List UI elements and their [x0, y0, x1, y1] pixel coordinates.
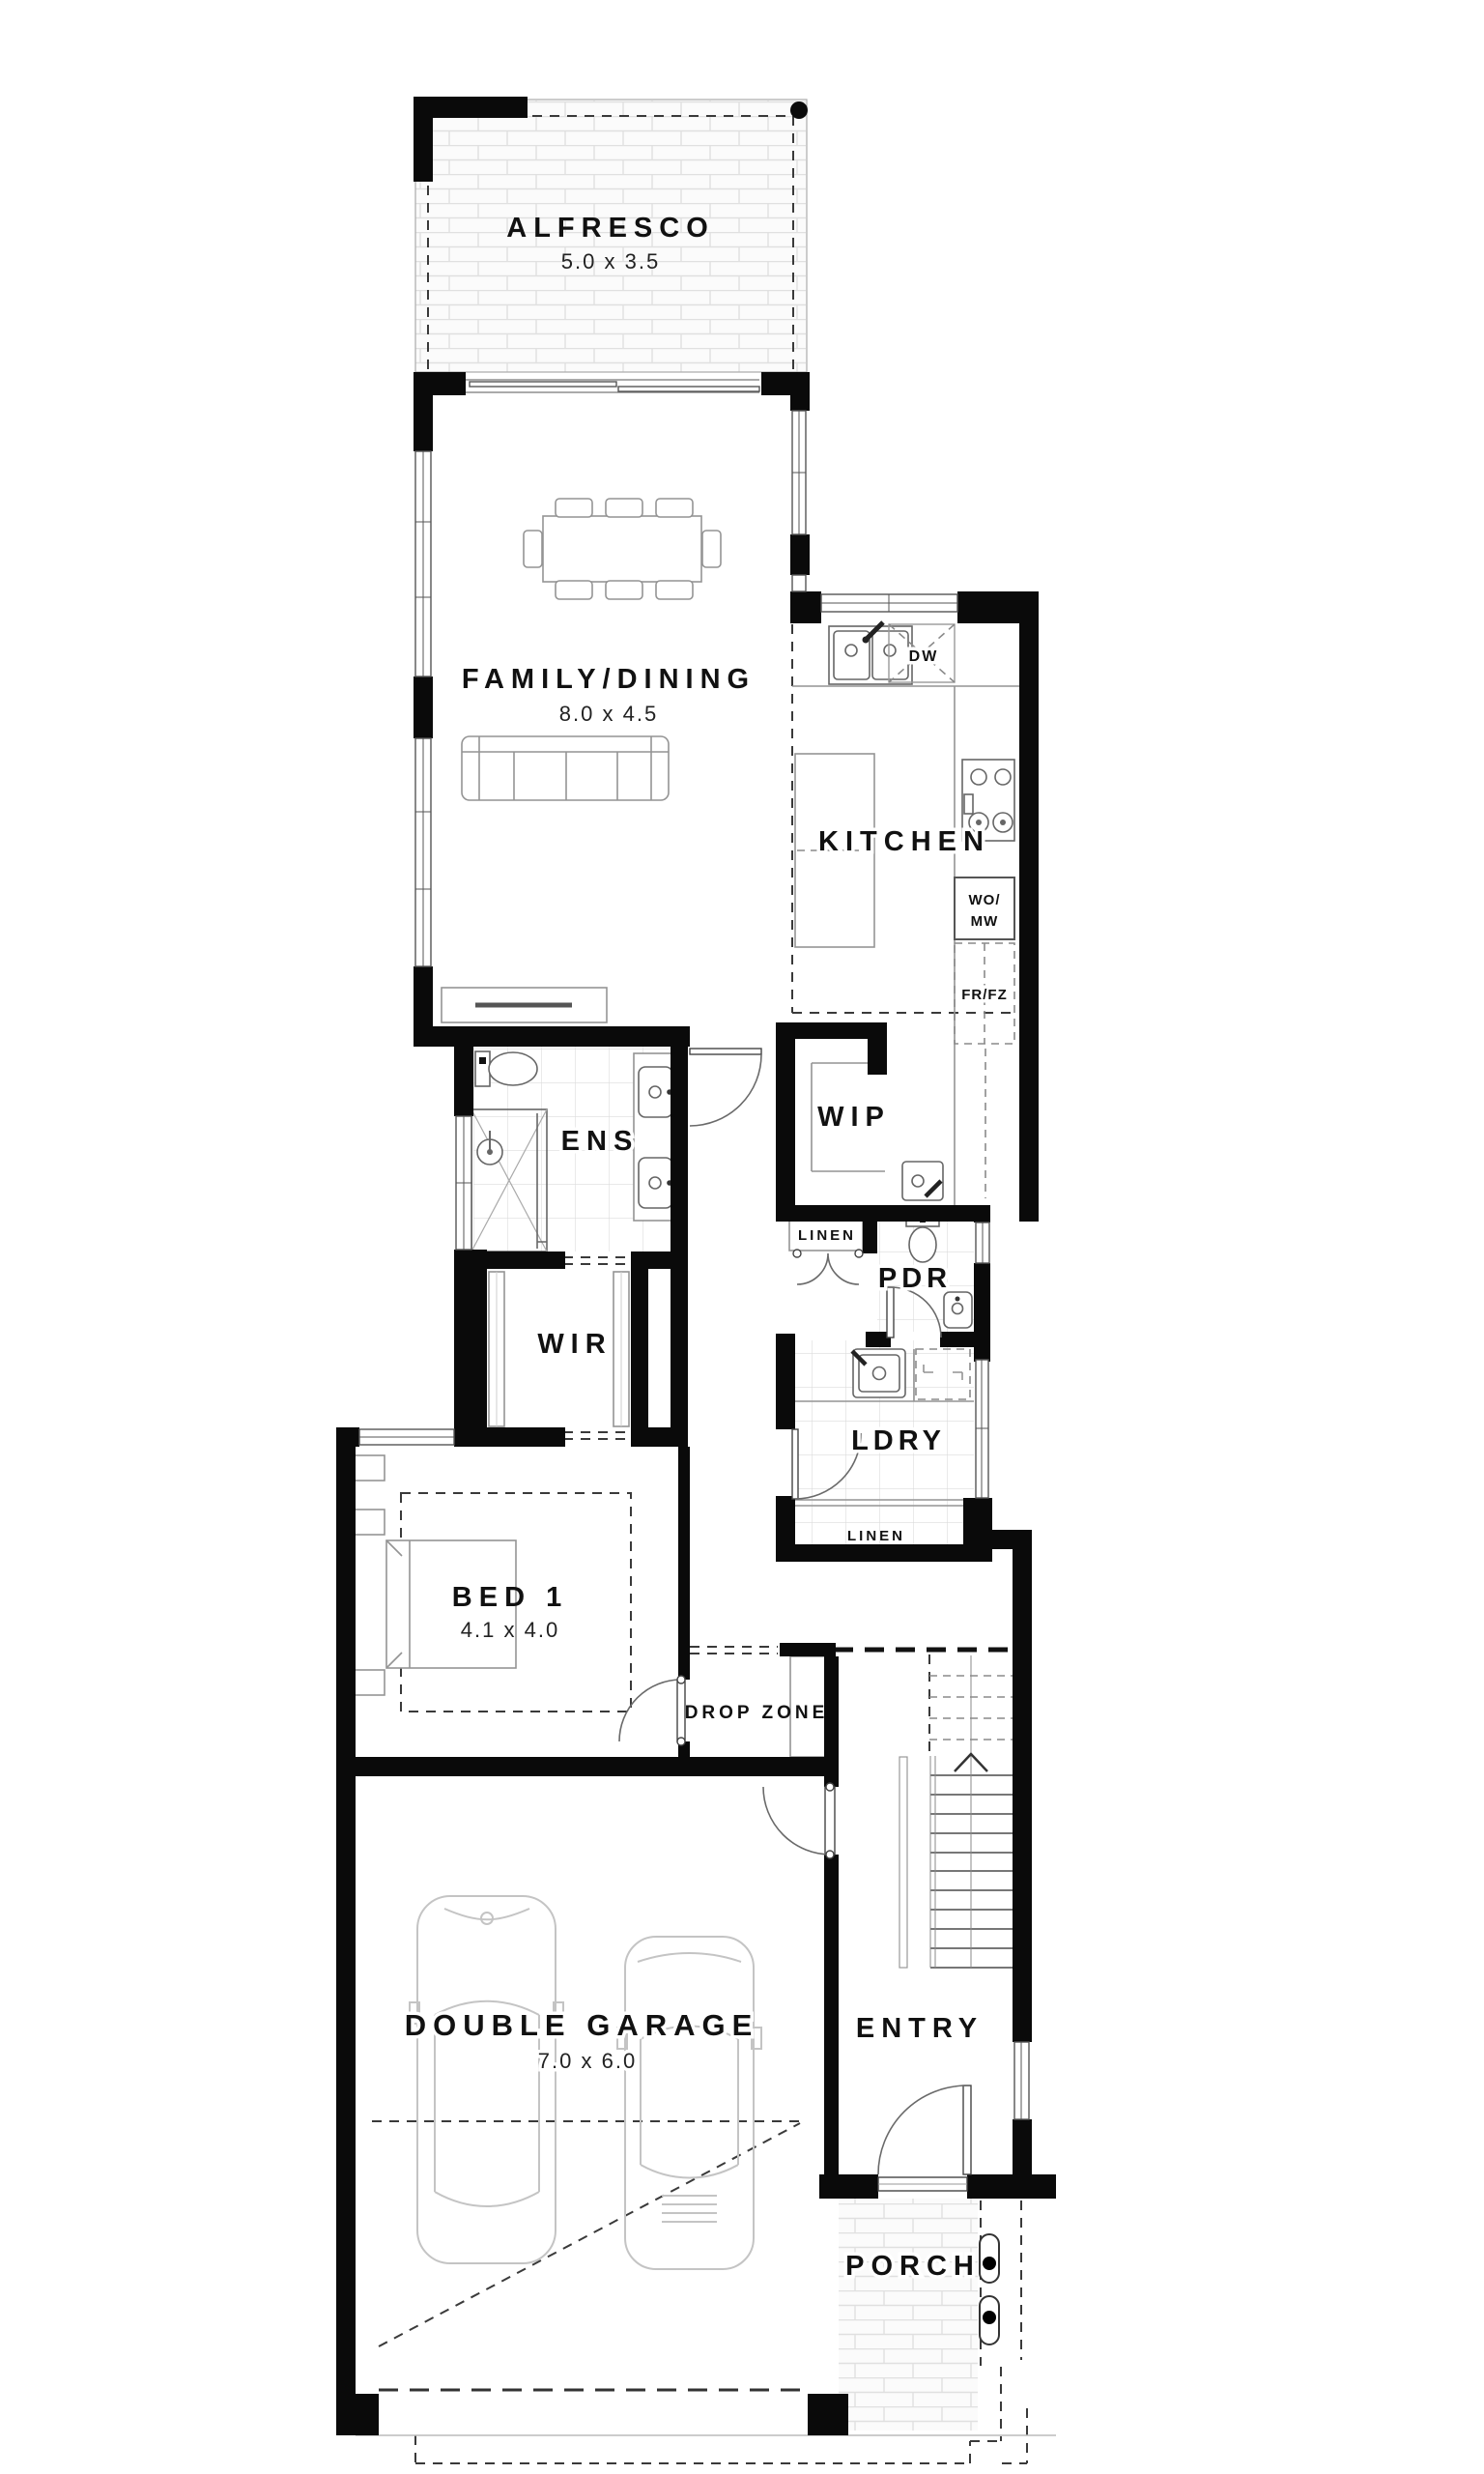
wall-segment: [974, 1263, 990, 1362]
wall-segment: [336, 1757, 833, 1776]
door-leaf: [792, 1429, 798, 1499]
slider-panel: [618, 387, 759, 391]
bedside-table: [354, 1670, 385, 1695]
sink-drain: [884, 645, 896, 656]
wall-oven-label-1: WO/: [969, 892, 1001, 908]
wall-segment: [671, 1047, 688, 1447]
wip-sink-drain: [912, 1175, 924, 1187]
door-swing: [797, 1253, 859, 1284]
wall-segment: [790, 372, 810, 411]
wall-segment: [414, 97, 433, 182]
kitchen-label: KITCHEN: [818, 826, 990, 857]
wall-oven-label-2: MW: [971, 913, 999, 930]
tv-unit: [442, 988, 607, 1022]
dining-chair: [656, 581, 693, 599]
door-leaf: [887, 1287, 894, 1338]
wall-segment: [414, 395, 433, 451]
bed1-label: BED 1: [452, 1582, 568, 1613]
burner: [995, 769, 1011, 785]
dining-chair: [656, 499, 693, 517]
car-badge: [481, 1913, 493, 1924]
bedside-table: [354, 1455, 385, 1481]
dining-chair: [606, 581, 642, 599]
wall-segment: [808, 2394, 848, 2435]
wall-segment: [336, 2394, 379, 2435]
staircase: [899, 1655, 1013, 1968]
garage-setout-diagonal: [379, 2123, 800, 2346]
front-door: [878, 2086, 971, 2191]
wall-segment: [780, 1643, 836, 1656]
door-swing: [619, 1680, 681, 1741]
ens-vanity: [634, 1053, 676, 1221]
car-body: [417, 1896, 556, 2263]
garage-dims: 7.0 x 6.0: [538, 2049, 637, 2073]
alfresco-dims: 5.0 x 3.5: [561, 249, 660, 273]
wall-segment: [819, 2174, 878, 2199]
car-glass: [638, 1953, 741, 2178]
kitchen-sink: [829, 622, 912, 684]
wall-segment: [678, 1447, 690, 1680]
dining-table: [543, 516, 701, 582]
basin-drain: [649, 1177, 661, 1189]
pdr-pan: [909, 1227, 936, 1262]
ens-toilet: [475, 1051, 537, 1086]
sink-drain: [845, 645, 857, 656]
door-hinge: [677, 1676, 685, 1683]
car-glass: [435, 1909, 539, 2206]
bed1-door: [619, 1676, 685, 1745]
wall-segment: [454, 1251, 565, 1269]
sofa-outline: [462, 736, 669, 800]
wir-label: WIR: [537, 1329, 612, 1360]
linen-upper-label: LINEN: [798, 1227, 856, 1244]
stair-balustrade: [899, 1757, 907, 1968]
porch-column-post: [983, 2311, 996, 2324]
hall-door: [690, 1049, 761, 1126]
window: [792, 575, 806, 591]
garage-internal-door: [763, 1783, 835, 1858]
drop-zone-label: DROP ZONE: [685, 1703, 829, 1723]
ldry-drain: [873, 1367, 886, 1380]
car-left: [410, 1896, 563, 2263]
porch-paving: [839, 2199, 978, 2431]
wall-segment: [776, 1544, 992, 1562]
wall-segment: [863, 1208, 877, 1253]
wall-segment: [414, 676, 433, 738]
wall-segment: [631, 1427, 671, 1447]
wall-segment: [868, 1022, 887, 1075]
wall-segment: [631, 1251, 671, 1269]
dining-chair: [702, 531, 721, 567]
wall-segment: [1019, 591, 1039, 1222]
toilet-cistern: [475, 1051, 490, 1086]
door-swing: [690, 1054, 761, 1126]
wall-segment: [776, 1334, 795, 1429]
ldry-label: LDRY: [851, 1425, 946, 1456]
door-hinge: [793, 1250, 801, 1257]
floorplan-canvas: ALFRESCO 5.0 x 3.5 FAMILY/DINING 8.0 x 4…: [0, 0, 1484, 2474]
toilet-button: [479, 1057, 486, 1064]
dining-setting: [524, 499, 721, 599]
wip-label: WIP: [817, 1102, 891, 1133]
toilet-pan: [489, 1052, 537, 1085]
fridge-label: FR/FZ: [961, 987, 1008, 1003]
door-leaf: [690, 1049, 761, 1054]
bed1-dims: 4.1 x 4.0: [461, 1618, 559, 1642]
wall-segment: [992, 1530, 1014, 1549]
wall-segment: [790, 591, 821, 623]
garage-label: DOUBLE GARAGE: [405, 2008, 759, 2042]
car-right: [617, 1937, 761, 2269]
sink-tap-base: [863, 637, 870, 644]
door-hinge: [855, 1250, 863, 1257]
door-hinge: [826, 1783, 834, 1791]
family-dining-dims: 8.0 x 4.5: [559, 702, 658, 726]
porch-columns: [980, 2234, 999, 2345]
door-hinge: [826, 1851, 834, 1858]
wall-segment: [631, 1269, 648, 1429]
dining-chair: [556, 581, 592, 599]
door-swing: [763, 1787, 831, 1855]
alfresco-label: ALFRESCO: [506, 213, 715, 244]
wall-segment: [776, 1496, 795, 1546]
pdr-basin-tap: [956, 1297, 960, 1302]
wall-segment: [940, 1332, 974, 1347]
wall-segment: [454, 1427, 565, 1447]
wall-segment: [974, 1205, 990, 1223]
wall-segment: [433, 1026, 690, 1047]
dining-chair: [606, 499, 642, 517]
wall-segment: [790, 534, 810, 575]
wall-segment: [963, 1498, 992, 1549]
burner-dot: [1000, 820, 1006, 825]
door-leaf: [963, 2086, 971, 2174]
pdr-label: PDR: [878, 1263, 952, 1294]
pdr-basin-drain: [953, 1304, 963, 1314]
porch-label: PORCH: [845, 2251, 981, 2282]
bed1-furniture: [354, 1455, 516, 1695]
dining-chair: [524, 531, 542, 567]
linen-upper-doors: [793, 1250, 863, 1284]
alfresco-post: [790, 101, 808, 119]
ens-wir-opening: [563, 1257, 631, 1264]
cooktop-controls: [964, 794, 973, 814]
car-grille: [662, 2196, 717, 2222]
bedside-table: [354, 1510, 385, 1535]
family-dining-label: FAMILY/DINING: [462, 664, 756, 695]
wall-oven-box: [955, 877, 1014, 939]
door-leaf: [825, 1787, 835, 1855]
door-swing: [878, 2086, 967, 2174]
sofa: [462, 736, 669, 800]
hall-bulkhead-line: [690, 1647, 778, 1654]
ens-label: ENS: [561, 1126, 640, 1157]
linen-lower-label: LINEN: [847, 1528, 905, 1544]
stair-stringer: [930, 1756, 935, 1968]
wall-segment: [414, 372, 466, 395]
slider-panel: [470, 382, 616, 387]
wall-segment: [1013, 1530, 1032, 2042]
wall-segment: [454, 1269, 487, 1429]
wall-segment: [454, 1047, 473, 1116]
wall-segment: [967, 2174, 1056, 2199]
wall-segment: [776, 1022, 795, 1218]
entry-label: ENTRY: [856, 2013, 984, 2044]
dining-chair: [556, 499, 592, 517]
door-hinge: [677, 1738, 685, 1745]
dishwasher-label: DW: [909, 648, 939, 665]
burner: [971, 769, 986, 785]
porch-column-post: [983, 2257, 996, 2270]
wall-segment: [336, 1427, 356, 2435]
burner-dot: [976, 820, 982, 825]
wall-segment: [824, 1855, 839, 2199]
wir-bed1-opening: [563, 1432, 631, 1439]
basin-drain: [649, 1086, 661, 1098]
car-body: [625, 1937, 754, 2269]
sliding-door-alfresco: [466, 380, 759, 392]
